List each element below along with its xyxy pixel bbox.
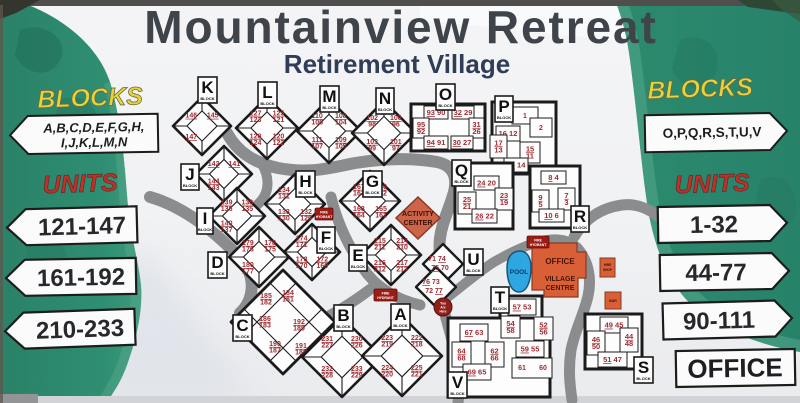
svg-text:147: 147 <box>185 134 197 141</box>
svg-text:60: 60 <box>539 365 547 372</box>
svg-text:213: 213 <box>396 267 408 274</box>
svg-text:107: 107 <box>311 143 323 150</box>
svg-text:129: 129 <box>300 216 312 223</box>
svg-text:66: 66 <box>490 353 498 362</box>
svg-text:BLOCK: BLOCK <box>200 96 214 101</box>
svg-text:56: 56 <box>539 327 547 336</box>
svg-text:Here: Here <box>439 310 446 314</box>
svg-text:229: 229 <box>351 372 363 379</box>
svg-text:76 73: 76 73 <box>422 279 440 286</box>
svg-text:BLOCK: BLOCK <box>319 246 333 251</box>
svg-text:71 74: 71 74 <box>428 256 446 263</box>
svg-text:105: 105 <box>335 143 347 150</box>
svg-text:H: H <box>299 172 311 191</box>
svg-text:176: 176 <box>242 246 254 253</box>
svg-text:90-111: 90-111 <box>683 307 756 336</box>
svg-text:8 4: 8 4 <box>548 173 559 182</box>
svg-text:175: 175 <box>264 246 276 253</box>
svg-text:13: 13 <box>494 145 502 154</box>
svg-text:123: 123 <box>250 117 262 124</box>
svg-text:A: A <box>394 305 406 324</box>
svg-text:61: 61 <box>518 365 526 372</box>
svg-text:26: 26 <box>472 127 480 136</box>
svg-text:BLOCK: BLOCK <box>183 183 197 188</box>
svg-text:146: 146 <box>185 113 197 120</box>
svg-text:BLOCK: BLOCK <box>198 227 212 232</box>
svg-text:161-192: 161-192 <box>37 264 126 293</box>
svg-text:T: T <box>495 288 506 307</box>
svg-text:U: U <box>467 250 479 269</box>
svg-text:ACTIVITY: ACTIVITY <box>402 211 434 218</box>
svg-text:227: 227 <box>321 343 333 350</box>
svg-text:48: 48 <box>625 339 633 348</box>
svg-text:170: 170 <box>296 263 308 270</box>
svg-text:BLOCK: BLOCK <box>336 324 350 329</box>
svg-text:E: E <box>352 246 363 265</box>
svg-text:Retirement Village: Retirement Village <box>284 49 510 79</box>
svg-text:51 47: 51 47 <box>603 355 622 364</box>
svg-text:218: 218 <box>411 342 423 349</box>
svg-text:BLOCK: BLOCK <box>497 115 511 120</box>
svg-text:G: G <box>366 172 379 191</box>
svg-text:BLOCK: BLOCK <box>393 323 407 328</box>
svg-text:BLOCK: BLOCK <box>454 179 468 184</box>
svg-text:98: 98 <box>368 122 376 129</box>
svg-text:HYDRANT: HYDRANT <box>530 243 548 247</box>
svg-text:BLOCK: BLOCK <box>636 376 650 381</box>
svg-text:189: 189 <box>293 326 305 333</box>
svg-text:68: 68 <box>457 353 465 362</box>
svg-text:121: 121 <box>273 117 285 124</box>
svg-text:B: B <box>337 306 349 325</box>
svg-text:BLOCK: BLOCK <box>210 271 224 276</box>
svg-text:BLOCK: BLOCK <box>260 101 274 106</box>
svg-text:124: 124 <box>250 140 262 147</box>
svg-text:121-147: 121-147 <box>38 212 127 241</box>
svg-text:D: D <box>211 253 223 272</box>
svg-text:BLOCKS: BLOCKS <box>37 82 144 114</box>
svg-text:50: 50 <box>592 342 600 351</box>
svg-text:5: 5 <box>538 200 542 209</box>
svg-text:187: 187 <box>269 348 281 355</box>
svg-text:122: 122 <box>273 140 285 147</box>
svg-text:3: 3 <box>564 198 568 207</box>
svg-text:99: 99 <box>368 145 376 152</box>
svg-text:OFFICE: OFFICE <box>545 257 575 266</box>
svg-text:136: 136 <box>221 206 233 213</box>
svg-text:32 29: 32 29 <box>454 108 473 117</box>
svg-text:Mountainview Retreat: Mountainview Retreat <box>144 1 657 53</box>
svg-text:Q: Q <box>455 161 468 180</box>
svg-text:K: K <box>201 78 214 97</box>
svg-text:226: 226 <box>351 343 363 350</box>
svg-text:O: O <box>439 85 452 104</box>
svg-text:V: V <box>452 373 464 392</box>
svg-text:182: 182 <box>260 300 272 307</box>
svg-text:75 70: 75 70 <box>431 265 449 272</box>
svg-text:SHOP: SHOP <box>603 268 613 272</box>
svg-text:L: L <box>262 83 272 102</box>
svg-text:171: 171 <box>296 242 308 249</box>
svg-text:104: 104 <box>335 120 347 127</box>
svg-text:P: P <box>498 97 509 116</box>
svg-text:164: 164 <box>353 213 365 220</box>
svg-text:UNITS: UNITS <box>42 169 118 200</box>
svg-text:BLOCK: BLOCK <box>351 264 365 269</box>
svg-text:R: R <box>574 207 586 226</box>
svg-text:69 65: 69 65 <box>468 368 487 377</box>
svg-text:181: 181 <box>282 297 294 304</box>
svg-text:26 22: 26 22 <box>475 212 494 221</box>
svg-text:HYDRANT: HYDRANT <box>316 215 334 219</box>
svg-text:1: 1 <box>523 113 527 120</box>
svg-text:96: 96 <box>392 122 400 129</box>
svg-text:24 20: 24 20 <box>477 179 496 188</box>
svg-text:72 77: 72 77 <box>425 288 443 295</box>
svg-text:BLOCK: BLOCK <box>573 225 587 230</box>
svg-text:44-77: 44-77 <box>685 259 747 287</box>
svg-text:POOL: POOL <box>510 269 528 276</box>
svg-text:BLOCKS: BLOCKS <box>647 73 754 105</box>
svg-text:10 6: 10 6 <box>544 211 559 220</box>
svg-text:M: M <box>322 87 336 106</box>
svg-text:A,B,C,D,E,F,G,H,: A,B,C,D,E,F,G,H, <box>42 119 144 136</box>
svg-text:67 63: 67 63 <box>465 328 484 337</box>
svg-text:HYDRANT: HYDRANT <box>377 296 395 300</box>
svg-text:19: 19 <box>500 198 508 207</box>
svg-text:135: 135 <box>242 206 254 213</box>
svg-text:220: 220 <box>381 371 393 378</box>
svg-text:BLOCK: BLOCK <box>322 105 336 110</box>
svg-text:O,P,Q,R,S,T,U,V: O,P,Q,R,S,T,U,V <box>662 124 761 141</box>
svg-text:210: 210 <box>396 244 408 251</box>
svg-text:S: S <box>638 358 649 377</box>
svg-text:92: 92 <box>417 127 425 136</box>
svg-text:1-32: 1-32 <box>690 211 739 239</box>
svg-text:BLOCK: BLOCK <box>378 107 392 112</box>
svg-text:UNITS: UNITS <box>674 169 750 200</box>
svg-text:BLOCK: BLOCK <box>438 103 452 108</box>
svg-text:I,J,K,L,M,N: I,J,K,L,M,N <box>61 134 128 150</box>
svg-text:219: 219 <box>381 342 393 349</box>
svg-text:N: N <box>379 89 391 108</box>
svg-text:142: 142 <box>208 161 220 168</box>
svg-text:BLOCK: BLOCK <box>235 334 249 339</box>
svg-text:I: I <box>203 209 208 228</box>
svg-text:30 27: 30 27 <box>453 138 472 147</box>
svg-text:BAR: BAR <box>609 299 617 303</box>
svg-text:2: 2 <box>539 125 543 132</box>
svg-text:J: J <box>185 165 194 184</box>
svg-text:VILLAGE: VILLAGE <box>545 276 576 283</box>
svg-text:137: 137 <box>221 227 233 234</box>
svg-text:145: 145 <box>207 113 219 120</box>
svg-text:161: 161 <box>375 213 387 220</box>
svg-text:57 53: 57 53 <box>513 303 532 312</box>
svg-text:183: 183 <box>259 323 271 330</box>
svg-text:169: 169 <box>317 263 329 270</box>
svg-text:212: 212 <box>374 267 386 274</box>
svg-text:BLOCK: BLOCK <box>450 391 464 396</box>
svg-text:131: 131 <box>278 193 290 200</box>
svg-text:CENTER: CENTER <box>404 220 433 227</box>
svg-text:59 55: 59 55 <box>521 345 540 354</box>
svg-text:130: 130 <box>278 216 290 223</box>
svg-text:HIRE: HIRE <box>604 263 612 267</box>
svg-text:CENTRE: CENTRE <box>546 285 575 292</box>
svg-text:C: C <box>236 316 248 335</box>
svg-text:BLOCK: BLOCK <box>298 190 312 195</box>
svg-text:106: 106 <box>311 120 323 127</box>
svg-text:BLOCK: BLOCK <box>466 268 480 273</box>
svg-text:210-233: 210-233 <box>36 315 125 345</box>
svg-text:211: 211 <box>374 244 385 251</box>
svg-text:21: 21 <box>463 202 471 211</box>
svg-text:141: 141 <box>229 161 241 168</box>
svg-text:OFFICE: OFFICE <box>687 352 783 384</box>
svg-text:177: 177 <box>242 269 254 276</box>
svg-text:94 91: 94 91 <box>427 138 446 147</box>
svg-text:228: 228 <box>321 372 333 379</box>
svg-text:BLOCK: BLOCK <box>493 306 507 311</box>
svg-text:58: 58 <box>506 326 514 335</box>
svg-text:BLOCK: BLOCK <box>365 190 379 195</box>
svg-text:221: 221 <box>411 371 423 378</box>
svg-text:97: 97 <box>392 145 400 152</box>
svg-text:143: 143 <box>208 185 220 192</box>
svg-text:F: F <box>321 228 331 247</box>
